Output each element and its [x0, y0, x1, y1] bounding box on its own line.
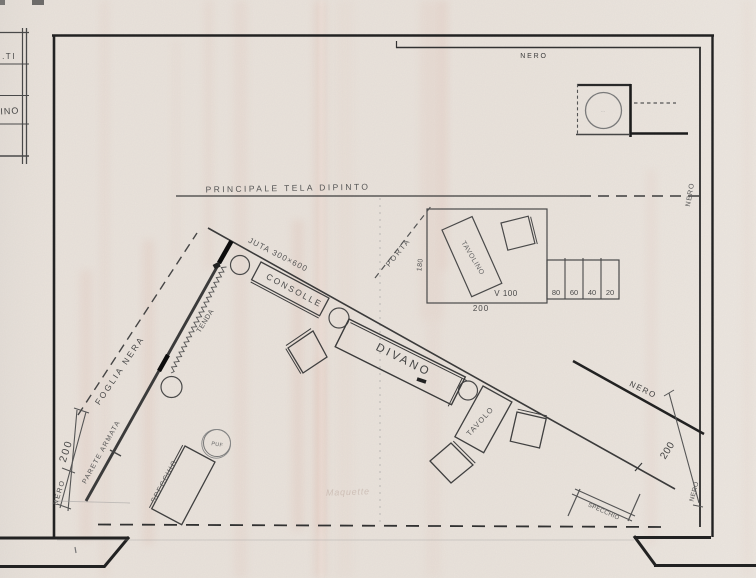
svg-text:INO: INO: [0, 106, 20, 117]
svg-text:40: 40: [588, 288, 596, 297]
svg-text:V 100: V 100: [494, 289, 517, 298]
svg-text:.TI: .TI: [2, 52, 16, 61]
svg-text:200: 200: [473, 304, 489, 313]
svg-text:20: 20: [606, 288, 614, 297]
svg-text:Maquette: Maquette: [326, 486, 370, 498]
svg-text:NERO: NERO: [520, 53, 547, 60]
svg-text:···: ···: [601, 109, 606, 115]
svg-text:60: 60: [570, 288, 578, 297]
svg-text:80: 80: [552, 288, 560, 297]
